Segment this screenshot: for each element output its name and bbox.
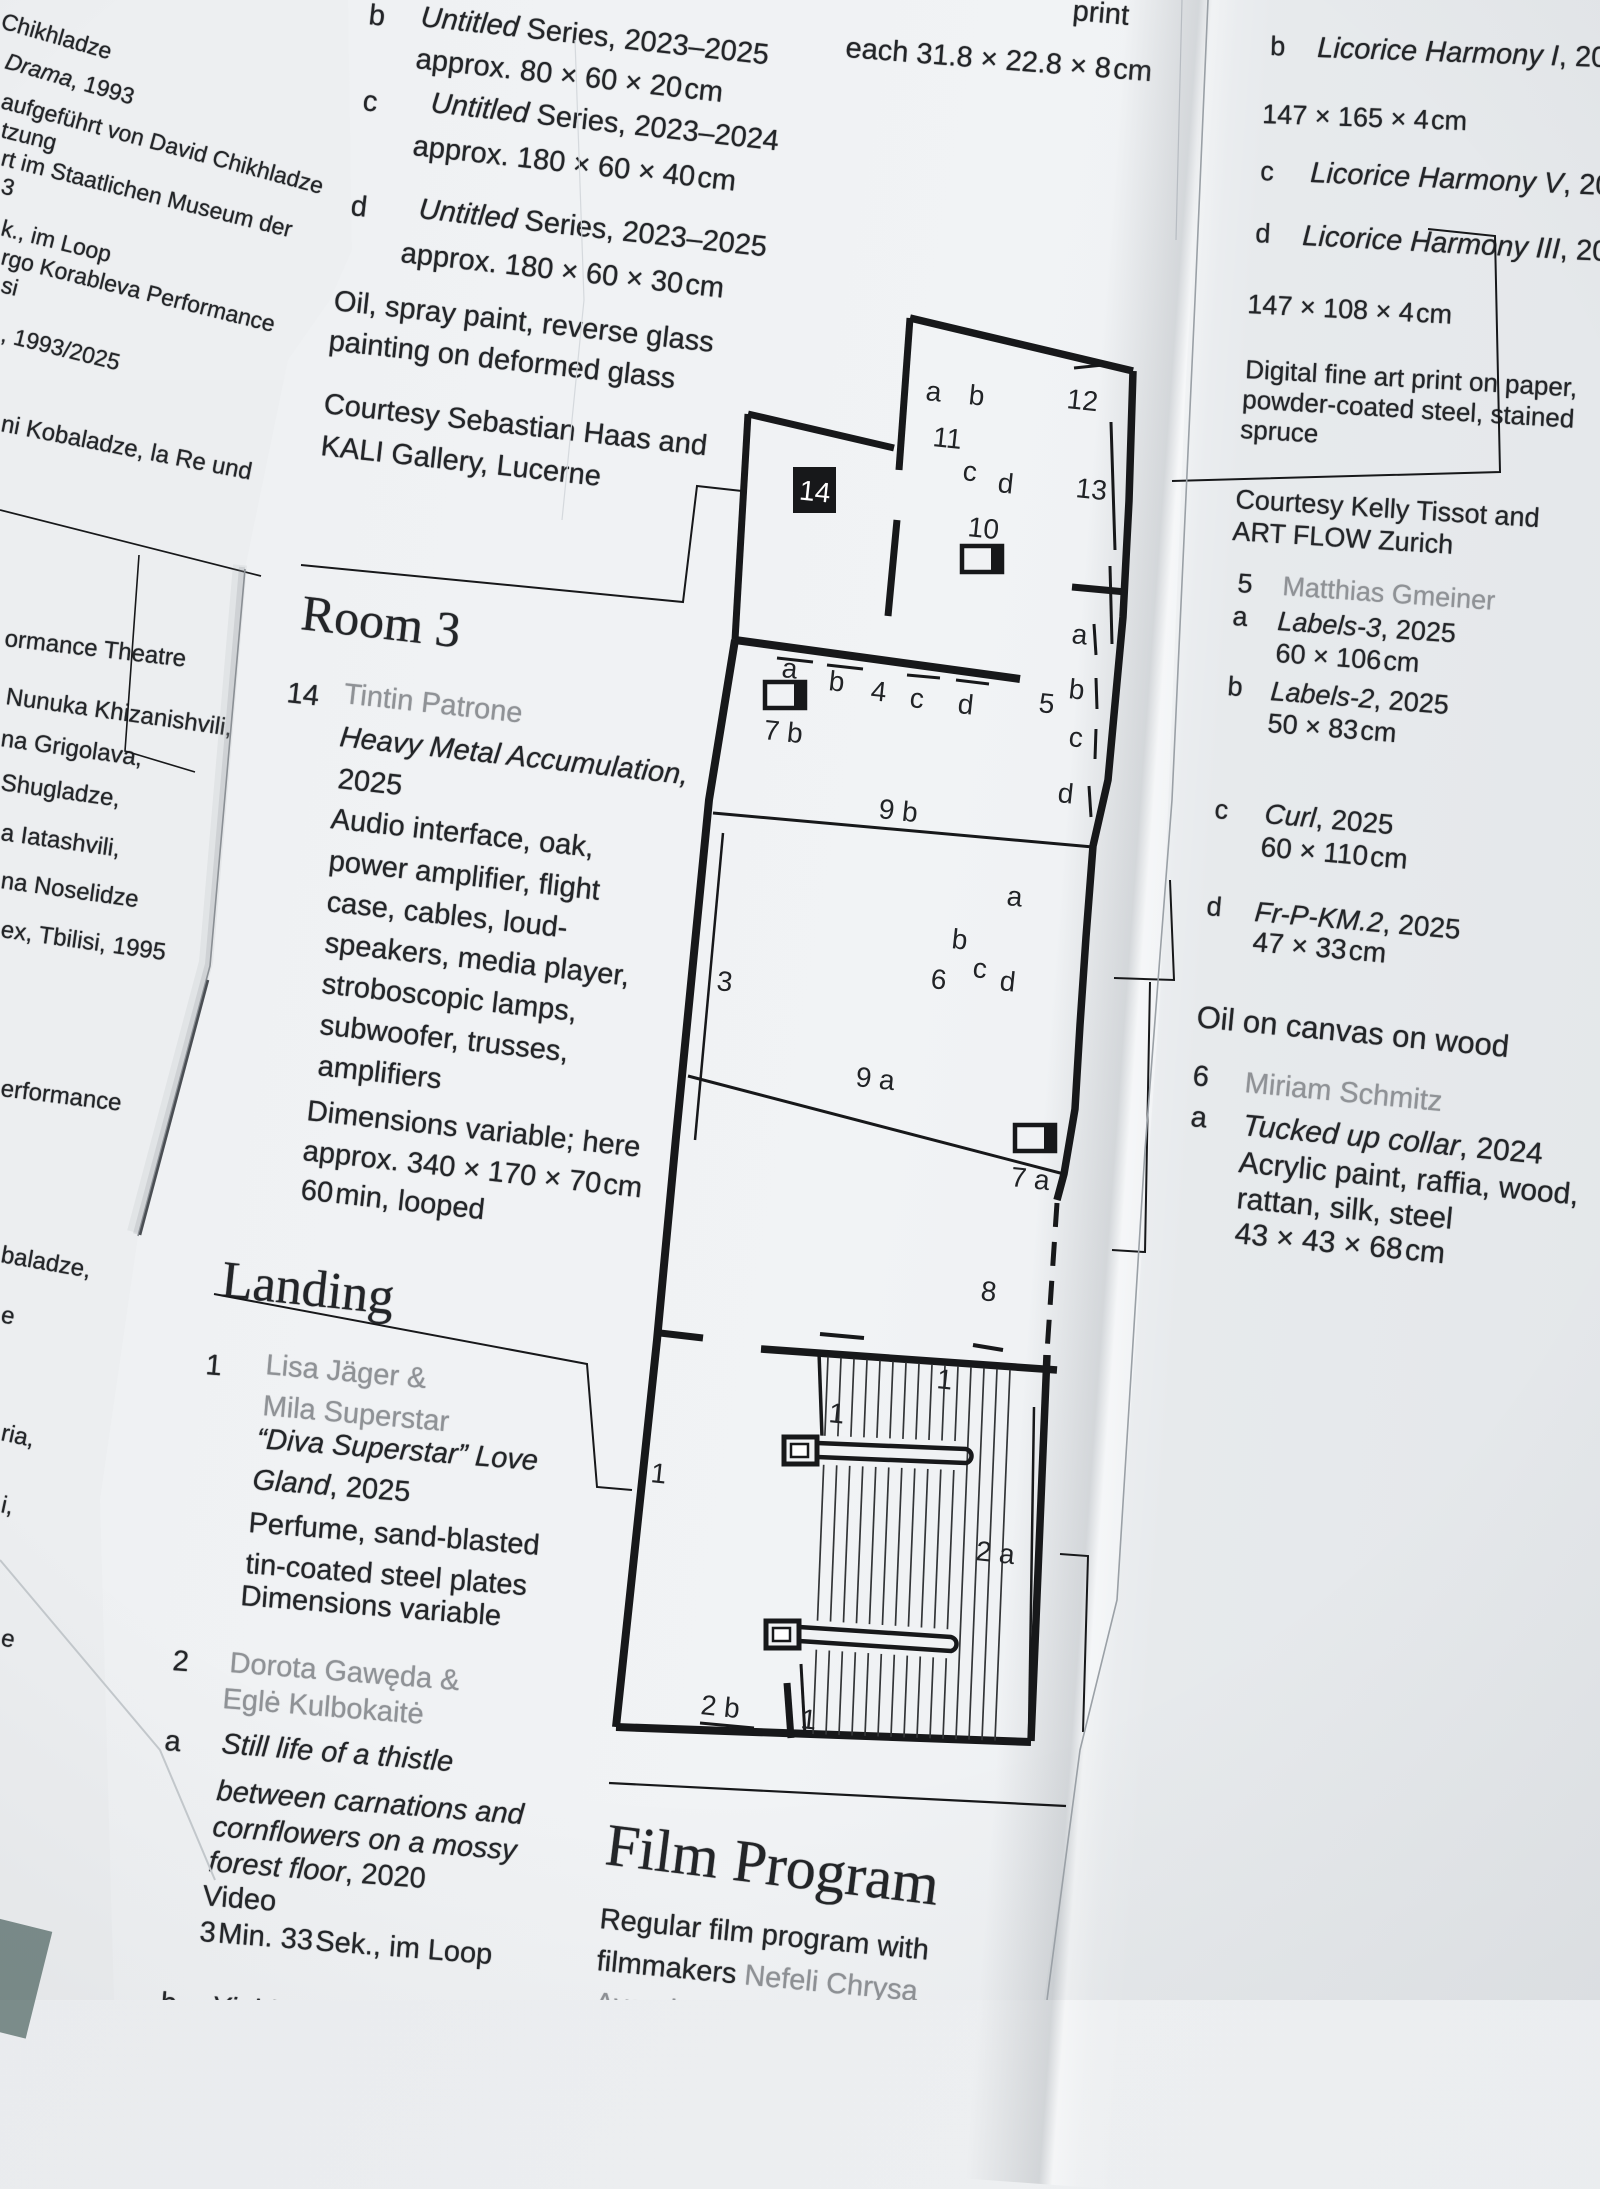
svg-text:b: b	[950, 923, 969, 955]
svg-text:5: 5	[1037, 687, 1056, 719]
svg-text:b: b	[827, 665, 846, 697]
svg-text:a: a	[1005, 880, 1024, 913]
svg-text:d: d	[996, 467, 1015, 499]
svg-text:c: c	[961, 455, 978, 487]
svg-text:4: 4	[869, 675, 888, 707]
svg-text:c: c	[1067, 721, 1084, 753]
svg-text:a: a	[1070, 618, 1089, 651]
svg-text:10: 10	[966, 511, 1000, 545]
svg-text:12: 12	[1065, 383, 1099, 417]
svg-text:1: 1	[935, 1363, 954, 1395]
svg-text:b: b	[1067, 673, 1086, 705]
svg-text:2 a: 2 a	[974, 1535, 1016, 1570]
svg-text:1: 1	[827, 1397, 846, 1429]
svg-text:c: c	[971, 952, 988, 984]
svg-text:a: a	[924, 375, 943, 408]
svg-text:14: 14	[798, 475, 832, 509]
svg-text:3: 3	[715, 965, 734, 997]
svg-text:11: 11	[931, 421, 963, 455]
svg-text:b: b	[967, 379, 986, 411]
svg-text:13: 13	[1074, 472, 1108, 506]
svg-text:d: d	[1056, 777, 1075, 809]
svg-text:7 b: 7 b	[762, 714, 804, 749]
svg-text:9 b: 9 b	[877, 793, 919, 828]
svg-text:1: 1	[649, 1457, 668, 1489]
svg-text:1: 1	[799, 1703, 818, 1735]
svg-text:2 b: 2 b	[699, 1689, 741, 1724]
svg-text:c: c	[908, 682, 925, 714]
svg-text:d: d	[998, 965, 1017, 997]
svg-text:6: 6	[929, 963, 948, 995]
svg-text:9 a: 9 a	[854, 1061, 896, 1096]
svg-text:d: d	[956, 688, 975, 720]
svg-text:7 a: 7 a	[1009, 1161, 1051, 1196]
svg-text:8: 8	[979, 1275, 998, 1307]
